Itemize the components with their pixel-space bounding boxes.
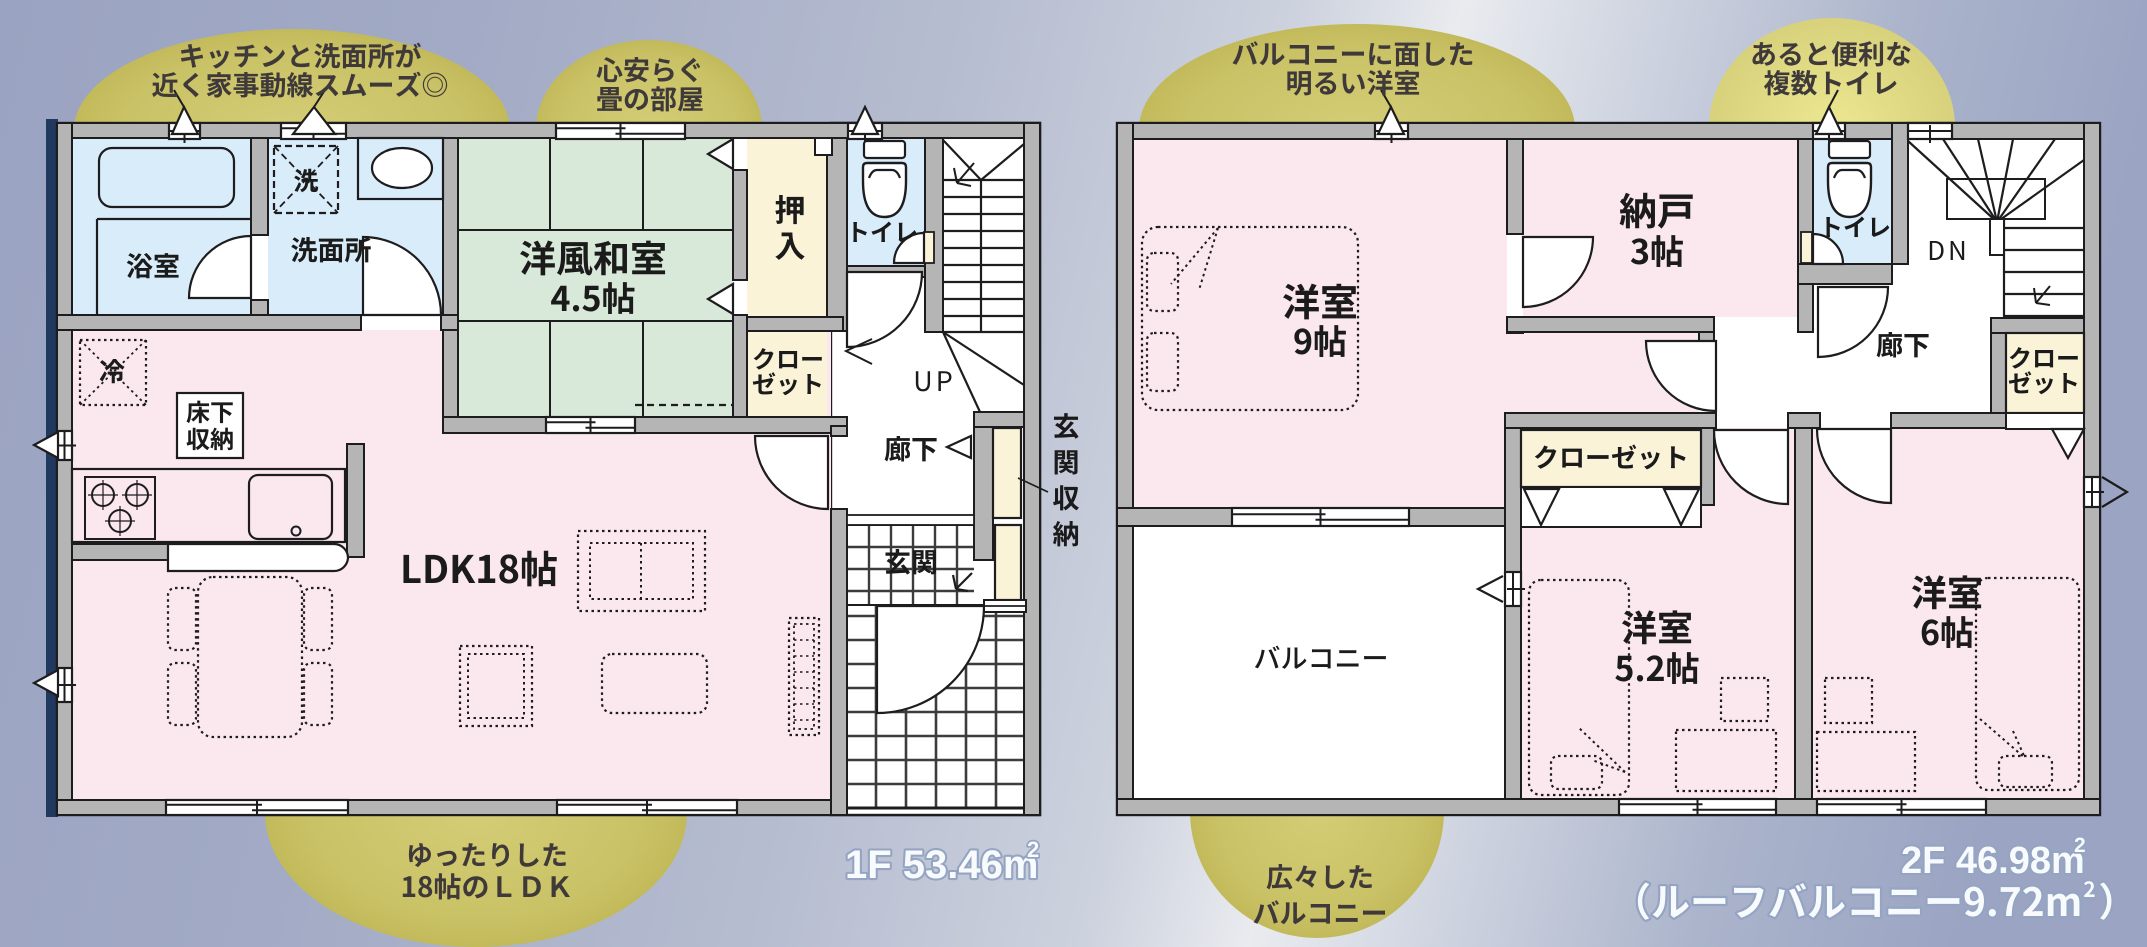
svg-text:2: 2 [1027, 837, 1039, 862]
svg-text:1F 53.46m: 1F 53.46m [845, 843, 1038, 887]
svg-text:2: 2 [2074, 834, 2086, 857]
svg-text:2F 46.98m: 2F 46.98m [1901, 840, 2085, 882]
